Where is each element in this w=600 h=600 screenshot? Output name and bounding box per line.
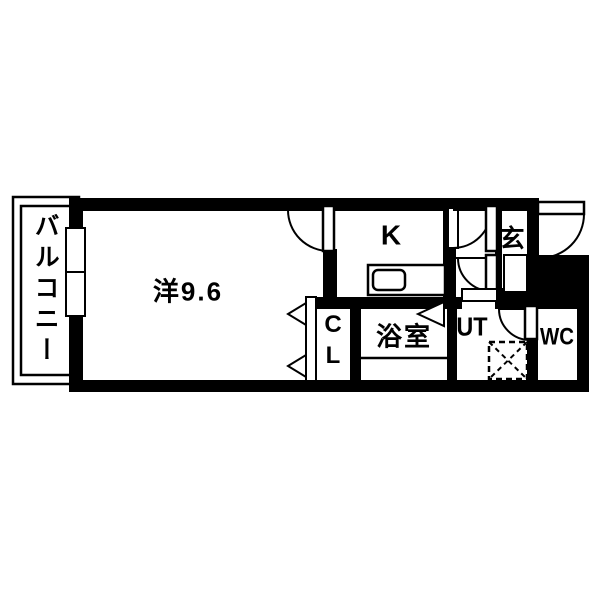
doorframe-kitchen-hall (448, 208, 458, 248)
wall-wc-right (577, 300, 589, 392)
door-swing-arrow-bottom (288, 355, 306, 377)
door-hall-utility (456, 255, 497, 301)
label-closet-line2: L (324, 340, 341, 371)
door-swing-arrow-top (288, 303, 306, 325)
kitchen-counter (368, 265, 445, 295)
label-toilet: WC (540, 324, 574, 349)
entrance-step (504, 255, 527, 292)
label-utility: UT (456, 313, 487, 340)
wall-closet-bath (350, 297, 361, 381)
floorplan: バルコニー 洋9.6 K 玄 C L 浴室 UT WC (0, 0, 600, 600)
floorplan-drawing (0, 0, 600, 600)
door-front-entrance (538, 202, 584, 258)
label-balcony: バルコニー (32, 213, 58, 368)
wall-middle-right (497, 297, 588, 309)
label-closet-line1: C (324, 309, 341, 340)
window-balcony (66, 228, 85, 316)
wall-bottom (69, 380, 589, 392)
door-living-kitchen (288, 206, 334, 251)
label-living-room: 洋9.6 (153, 278, 223, 305)
door-sill (462, 289, 497, 301)
kitchen-sink (373, 270, 405, 290)
washer-space (489, 342, 527, 379)
label-entrance: 玄 (499, 226, 524, 252)
door-hall-entrance (448, 206, 497, 251)
closet-door-panel (288, 297, 316, 381)
label-bathroom: 浴室 (376, 323, 432, 350)
door-utility (498, 306, 537, 340)
label-closet: C L (324, 309, 341, 371)
label-kitchen: K (381, 220, 401, 249)
wall-living-kitchen (323, 249, 337, 298)
